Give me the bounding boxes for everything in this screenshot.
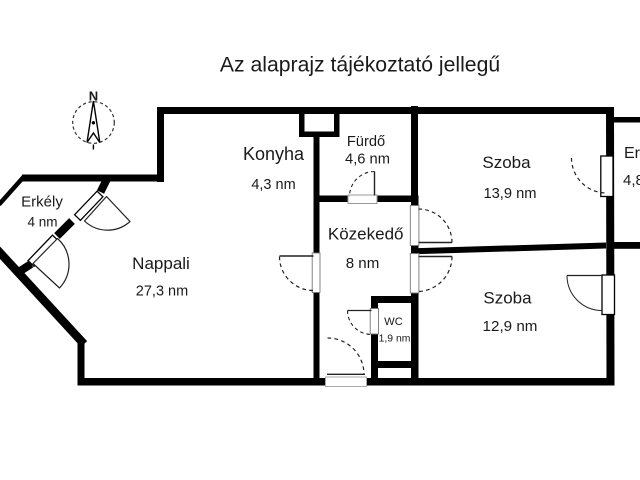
svg-text:1,9 nm: 1,9 nm <box>379 334 411 345</box>
svg-text:Nappali: Nappali <box>132 254 190 273</box>
svg-text:Az alaprajz tájékoztató jelleg: Az alaprajz tájékoztató jellegű <box>220 54 500 77</box>
svg-text:4 nm: 4 nm <box>27 215 57 230</box>
svg-text:Konyha: Konyha <box>243 144 305 164</box>
svg-text:13,9 nm: 13,9 nm <box>483 186 536 202</box>
svg-text:4,8 nm: 4,8 nm <box>623 172 640 189</box>
svg-text:4,6 nm: 4,6 nm <box>345 152 390 168</box>
svg-text:Szoba: Szoba <box>483 289 532 308</box>
svg-text:12,9 nm: 12,9 nm <box>483 318 538 335</box>
svg-text:Szoba: Szoba <box>482 153 531 172</box>
svg-text:8 nm: 8 nm <box>346 255 380 272</box>
svg-text:Közekedő: Közekedő <box>328 225 404 244</box>
svg-text:4,3 nm: 4,3 nm <box>251 177 295 193</box>
svg-text:27,3 nm: 27,3 nm <box>136 284 188 300</box>
svg-text:N: N <box>89 89 98 104</box>
svg-text:Fürdő: Fürdő <box>347 134 385 150</box>
svg-text:Erkély: Erkély <box>624 145 640 162</box>
svg-text:WC: WC <box>384 316 403 328</box>
svg-text:Erkély: Erkély <box>21 194 63 211</box>
